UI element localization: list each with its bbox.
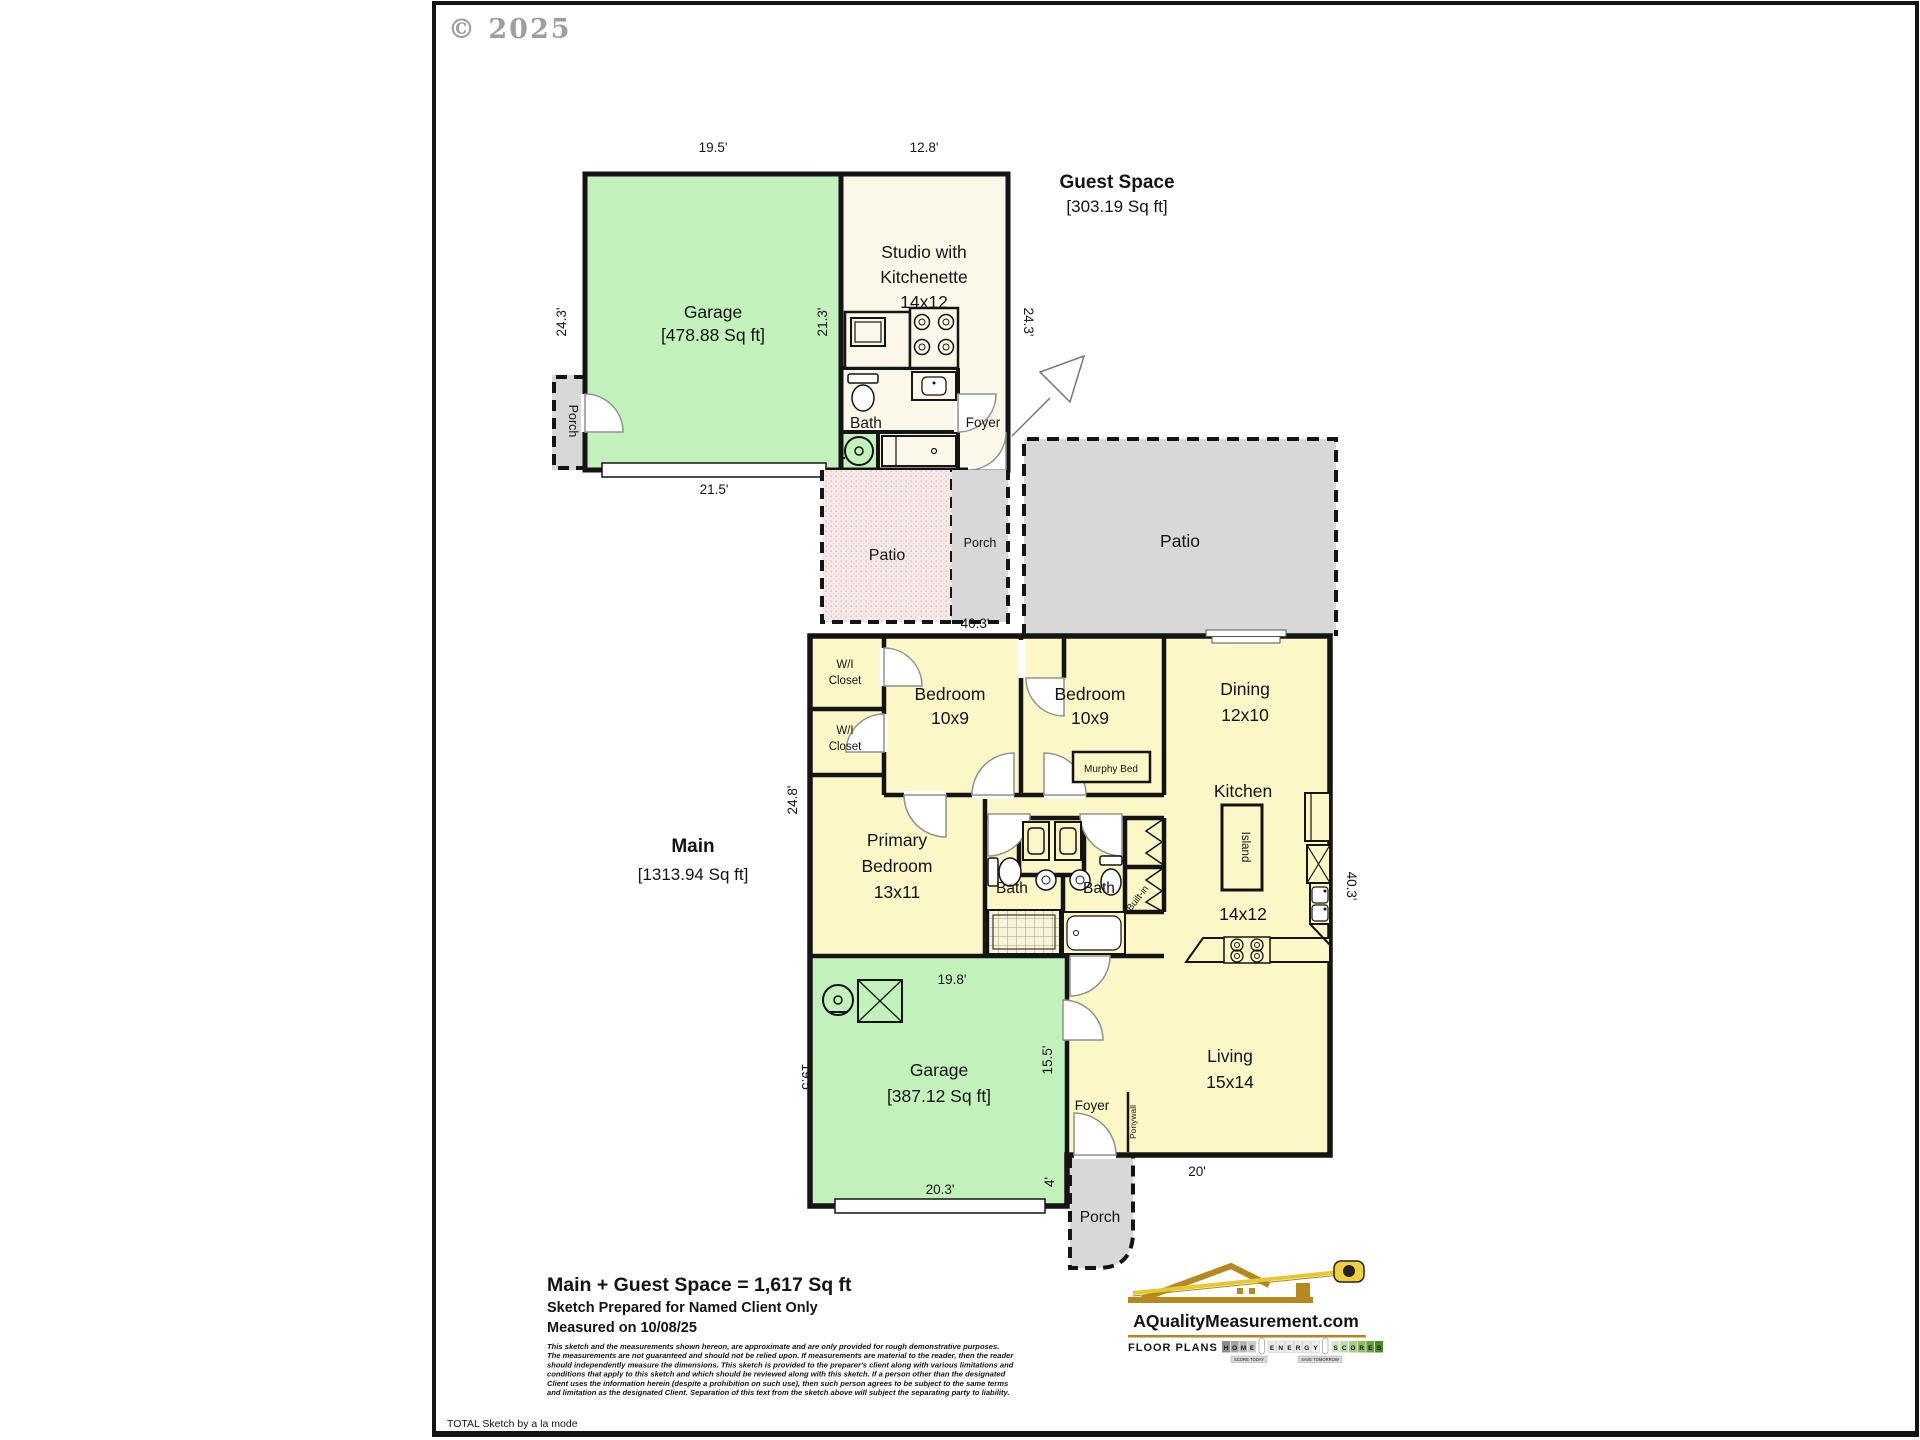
dim-guest-studio-top: 12.8' [910, 140, 939, 155]
dim-guest-garage-top: 19.5' [699, 140, 728, 155]
dim-main-right: 40.3' [1344, 872, 1359, 901]
logo-badge-1: SCORE TODAY [1234, 1357, 1264, 1362]
bedroom1-label: Bedroom [914, 684, 985, 704]
footer-text: TOTAL Sketch by a la mode [447, 1418, 578, 1430]
svg-text:R: R [1296, 1345, 1301, 1352]
summary-measured: Measured on 10/08/25 [547, 1320, 697, 1336]
svg-text:Y: Y [1313, 1345, 1318, 1352]
dim-main-living-bottom: 20' [1188, 1164, 1206, 1179]
svg-text:N: N [1278, 1345, 1283, 1352]
guest-garage-floor [585, 174, 841, 470]
disclaimer-line: conditions that apply to this sketch and… [547, 1370, 1006, 1379]
svg-text:S: S [1333, 1345, 1338, 1352]
svg-text:R: R [1359, 1345, 1364, 1352]
kitchenette-counter-icon [845, 312, 910, 368]
primary-label-1: Primary [867, 830, 928, 850]
main-foyer-label: Foyer [1075, 1098, 1110, 1113]
dim-main-garage-bottom: 20.3' [926, 1182, 955, 1197]
island-label: Island [1239, 832, 1251, 863]
guest-space-title: Guest Space [1059, 172, 1174, 193]
logo-tagline: FLOOR PLANS & [1128, 1342, 1231, 1354]
main-area: [1313.94 Sq ft] [638, 865, 749, 884]
svg-text:E: E [1250, 1345, 1255, 1352]
disclaimer-line: should independently measure the dimensi… [547, 1360, 1014, 1369]
closet1-label-2: Closet [829, 675, 862, 687]
dim-main-garage-top: 19.8' [938, 972, 967, 987]
ponywall-label: Ponywall [1128, 1105, 1138, 1139]
company-logo: AQualityMeasurement.com FLOOR PLANS & H … [1128, 1261, 1383, 1363]
dim-guest-left: 24.3' [554, 308, 569, 337]
dining-label: Dining [1220, 679, 1270, 699]
water-heater-icon [823, 985, 853, 1015]
logo-rule [1128, 1335, 1366, 1338]
floorplan-canvas: © 2025 [0, 0, 1920, 1440]
guest-space-area: [303.19 Sq ft] [1066, 197, 1167, 216]
bath-right-label: Bath [1083, 880, 1115, 897]
floorplan-page: © 2025 [0, 0, 1920, 1440]
kitchen-size: 14x12 [1219, 904, 1267, 924]
dim-guest-garage-bottom: 21.5' [700, 482, 729, 497]
main-porch-label: Porch [1080, 1209, 1121, 1226]
svg-text:E: E [1287, 1345, 1292, 1352]
thermometer-icon [1259, 1338, 1265, 1354]
vanity-counter-icon [882, 436, 956, 466]
svg-text:H: H [1224, 1345, 1229, 1352]
main-garage-area: [387.12 Sq ft] [887, 1086, 991, 1106]
bedroom1-size: 10x9 [931, 708, 969, 728]
kitchen-label: Kitchen [1214, 781, 1272, 801]
sink-icon [912, 372, 956, 400]
disclaimer-line: and limitation as the designated Client.… [547, 1388, 1010, 1397]
primary-label-2: Bedroom [861, 856, 932, 876]
svg-text:O: O [1350, 1345, 1355, 1352]
studio-label-2: Kitchenette [880, 267, 968, 287]
sliding-door-icon [1206, 630, 1286, 643]
svg-text:O: O [1232, 1345, 1237, 1352]
patio-small-floor [822, 470, 952, 622]
bathtub-icon [1063, 912, 1125, 954]
murphy-bed-label: Murphy Bed [1084, 764, 1138, 775]
sink-icon [1036, 870, 1056, 890]
patio-large-label: Patio [1160, 531, 1200, 551]
bedroom2-size: 10x9 [1071, 708, 1109, 728]
guest-garage-door [602, 463, 826, 477]
porch-small-label: Porch [964, 536, 997, 550]
disclaimer-line: Client uses the information herein (desp… [547, 1379, 1008, 1388]
logo-tiles: H O M E E N E R G Y S C O R E S [1222, 1338, 1383, 1354]
main-garage-door [835, 1199, 1045, 1213]
studio-size: 14x12 [900, 292, 948, 312]
page-border-bottom [434, 1431, 1917, 1437]
svg-text:C: C [1342, 1345, 1347, 1352]
guest-garage-label: Garage [684, 302, 742, 322]
guest-bath-label: Bath [850, 415, 882, 432]
guest-foyer-label: Foyer [966, 415, 1001, 430]
dim-main-garage-right: 15.5' [1040, 1046, 1055, 1075]
living-size: 15x14 [1206, 1072, 1254, 1092]
thermometer-icon [1323, 1338, 1329, 1354]
dim-main-entry: 4' [1042, 1177, 1057, 1187]
stove-icon [910, 308, 958, 368]
living-label: Living [1207, 1046, 1253, 1066]
patio-small-label: Patio [869, 547, 906, 564]
dim-guest-right: 24.3' [1021, 308, 1036, 337]
bedroom2-label: Bedroom [1054, 684, 1125, 704]
closet2-label-2: Closet [829, 741, 862, 753]
guest-porch-label: Porch [566, 405, 580, 438]
copyright-text: © 2025 [448, 14, 572, 45]
north-arrow-icon [1012, 356, 1084, 436]
svg-text:E: E [1270, 1345, 1275, 1352]
shower-icon [988, 910, 1060, 954]
dim-main-left: 24.8' [785, 786, 800, 815]
logo-badge-2: SAVE TOMORROW [1301, 1357, 1339, 1362]
bath-left-label: Bath [996, 880, 1028, 897]
door-gap [1017, 640, 1025, 678]
summary-block: Main + Guest Space = 1,617 Sq ft Sketch … [547, 1274, 1014, 1397]
primary-size: 13x11 [874, 882, 920, 902]
disclaimer-line: The measurements are not guaranteed and … [547, 1351, 1014, 1360]
dining-size: 12x10 [1221, 705, 1269, 725]
closet1-label-1: W/I [836, 659, 853, 671]
guest-garage-area: [478.88 Sq ft] [661, 325, 765, 345]
kitchen-counter-icon [1186, 937, 1330, 963]
studio-label-1: Studio with [881, 242, 967, 262]
summary-headline: Main + Guest Space = 1,617 Sq ft [547, 1274, 852, 1296]
logo-house-icon [1128, 1261, 1364, 1303]
logo-badges: SCORE TODAY SAVE TOMORROW [1231, 1356, 1342, 1363]
main-unit: Murphy Bed Island [638, 616, 1359, 1268]
svg-text:M: M [1241, 1345, 1246, 1352]
logo-domain: AQualityMeasurement.com [1133, 1311, 1359, 1331]
svg-text:G: G [1304, 1345, 1309, 1352]
dim-guest-inner: 21.3' [815, 308, 830, 337]
disclaimer-line: This sketch and the measurements shown h… [547, 1342, 999, 1351]
dim-main-garage-left: 19.5' [799, 1064, 814, 1093]
dim-main-top: 40.3' [961, 616, 990, 631]
summary-prepared: Sketch Prepared for Named Client Only [547, 1300, 818, 1316]
main-garage-label: Garage [910, 1060, 968, 1080]
main-title: Main [671, 836, 714, 857]
svg-text:S: S [1377, 1345, 1382, 1352]
svg-text:E: E [1368, 1345, 1373, 1352]
closet2-label-1: W/I [836, 725, 853, 737]
